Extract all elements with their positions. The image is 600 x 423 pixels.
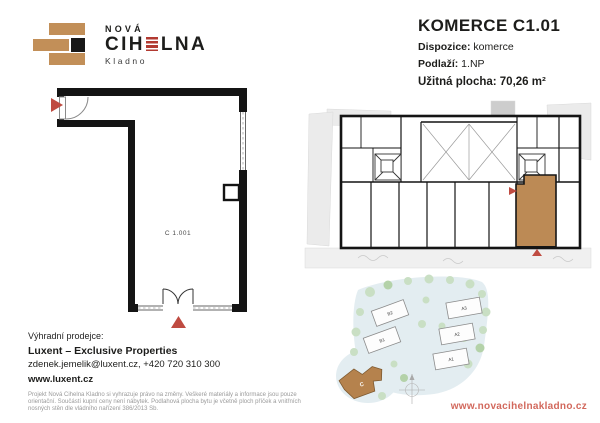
dispozice-value: komerce (471, 41, 514, 53)
storefront-window (138, 306, 232, 310)
room-label: C 1.001 (165, 230, 191, 237)
project-website-link[interactable]: www.novacihelnakladno.cz (451, 401, 587, 412)
logo-city: Kladno (105, 56, 207, 66)
unit-header: KOMERCE C1.01 Dispozice: komerce Podlaží… (418, 16, 590, 88)
disclaimer-line: Projekt Nová Cihelna Kladno si vyhrazuje… (28, 392, 328, 399)
logo-wordmark: NOVÁ CIHLNA Kladno (105, 24, 207, 66)
seller-contact[interactable]: zdenek.jemelik@luxent.cz, +420 720 310 3… (28, 358, 220, 373)
building-floorplan (303, 98, 595, 270)
dispozice-label: Dispozice: (418, 41, 471, 53)
highlighted-unit (516, 175, 556, 247)
logo-nova: NOVÁ (105, 24, 207, 34)
disclaimer-line: orientační. Součástí kupní ceny není náb… (28, 399, 328, 406)
window-right (241, 112, 246, 170)
unit-walls (57, 88, 247, 312)
podlazi-row: Podlaží: 1.NP (418, 58, 590, 70)
area-row: Užitná plocha: 70,26 m² (418, 76, 590, 88)
logo: NOVÁ CIHLNA Kladno (33, 22, 213, 72)
seller-name: Luxent – Exclusive Properties (28, 344, 220, 359)
unit-floorplan: C 1.001 (50, 85, 260, 337)
podlazi-label: Podlaží: (418, 58, 458, 70)
podlazi-value: 1.NP (458, 58, 484, 70)
dispozice-row: Dispozice: komerce (418, 41, 590, 53)
logo-cihelna-prefix: CIH (105, 34, 145, 55)
seller-website-link[interactable]: www.luxent.cz (28, 373, 220, 388)
logo-brick-icon (33, 22, 85, 66)
double-door (163, 289, 193, 304)
seller-heading: Výhradní prodejce: (28, 329, 220, 344)
disclaimer-line: nosných stěn dle vládního nařízení 386/2… (28, 406, 328, 413)
logo-cihelna: CIHLNA (105, 35, 207, 55)
entrance-arrow-icon (171, 316, 186, 328)
logo-cihelna-suffix: LNA (161, 34, 207, 55)
disclaimer: Projekt Nová Cihelna Kladno si vyhrazuje… (28, 392, 328, 413)
entrance-door (60, 97, 89, 119)
page-title: KOMERCE C1.01 (418, 16, 590, 36)
brochure-page: NOVÁ CIHLNA Kladno KOMERCE C1.01 Dispozi… (0, 0, 600, 423)
brick-e-icon (146, 37, 158, 51)
site-plan: B2 B1 A3 A2 A1 C (330, 268, 510, 410)
pillar (224, 185, 239, 200)
seller-block: Výhradní prodejce: Luxent – Exclusive Pr… (28, 329, 220, 387)
